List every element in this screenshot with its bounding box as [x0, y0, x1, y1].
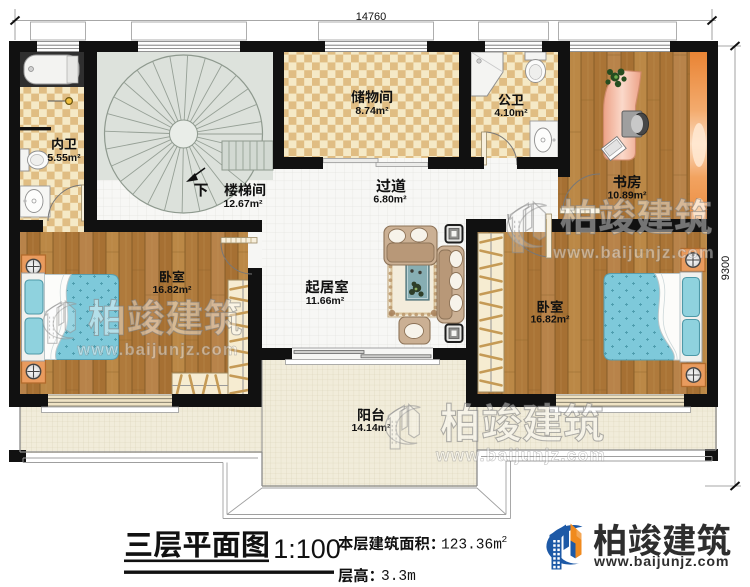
svg-text:10.89m²: 10.89m²	[607, 190, 647, 202]
svg-text:www.baijunjz.com: www.baijunjz.com	[76, 341, 239, 359]
svg-text:12.67m²: 12.67m²	[223, 198, 263, 210]
svg-text:8.74m²: 8.74m²	[355, 105, 389, 117]
svg-text:2: 2	[502, 534, 508, 545]
svg-text:9300: 9300	[720, 256, 732, 280]
svg-text:123.36m: 123.36m	[441, 538, 502, 554]
svg-text:16.82m²: 16.82m²	[152, 284, 192, 296]
svg-text:14760: 14760	[356, 11, 387, 23]
svg-text:5.55m²: 5.55m²	[47, 152, 81, 164]
svg-text:www.baijunjz.com: www.baijunjz.com	[435, 445, 606, 465]
svg-text:6.80m²: 6.80m²	[373, 194, 407, 206]
svg-text:www.baijunjz.com: www.baijunjz.com	[552, 244, 715, 262]
svg-text:1:100: 1:100	[273, 534, 341, 564]
svg-text:11.66m²: 11.66m²	[306, 295, 345, 307]
svg-text:www.baijunjz.com: www.baijunjz.com	[593, 554, 729, 570]
svg-text:3.3m: 3.3m	[381, 569, 416, 585]
svg-text:4.10m²: 4.10m²	[494, 107, 528, 119]
svg-text:16.82m²: 16.82m²	[530, 314, 570, 326]
